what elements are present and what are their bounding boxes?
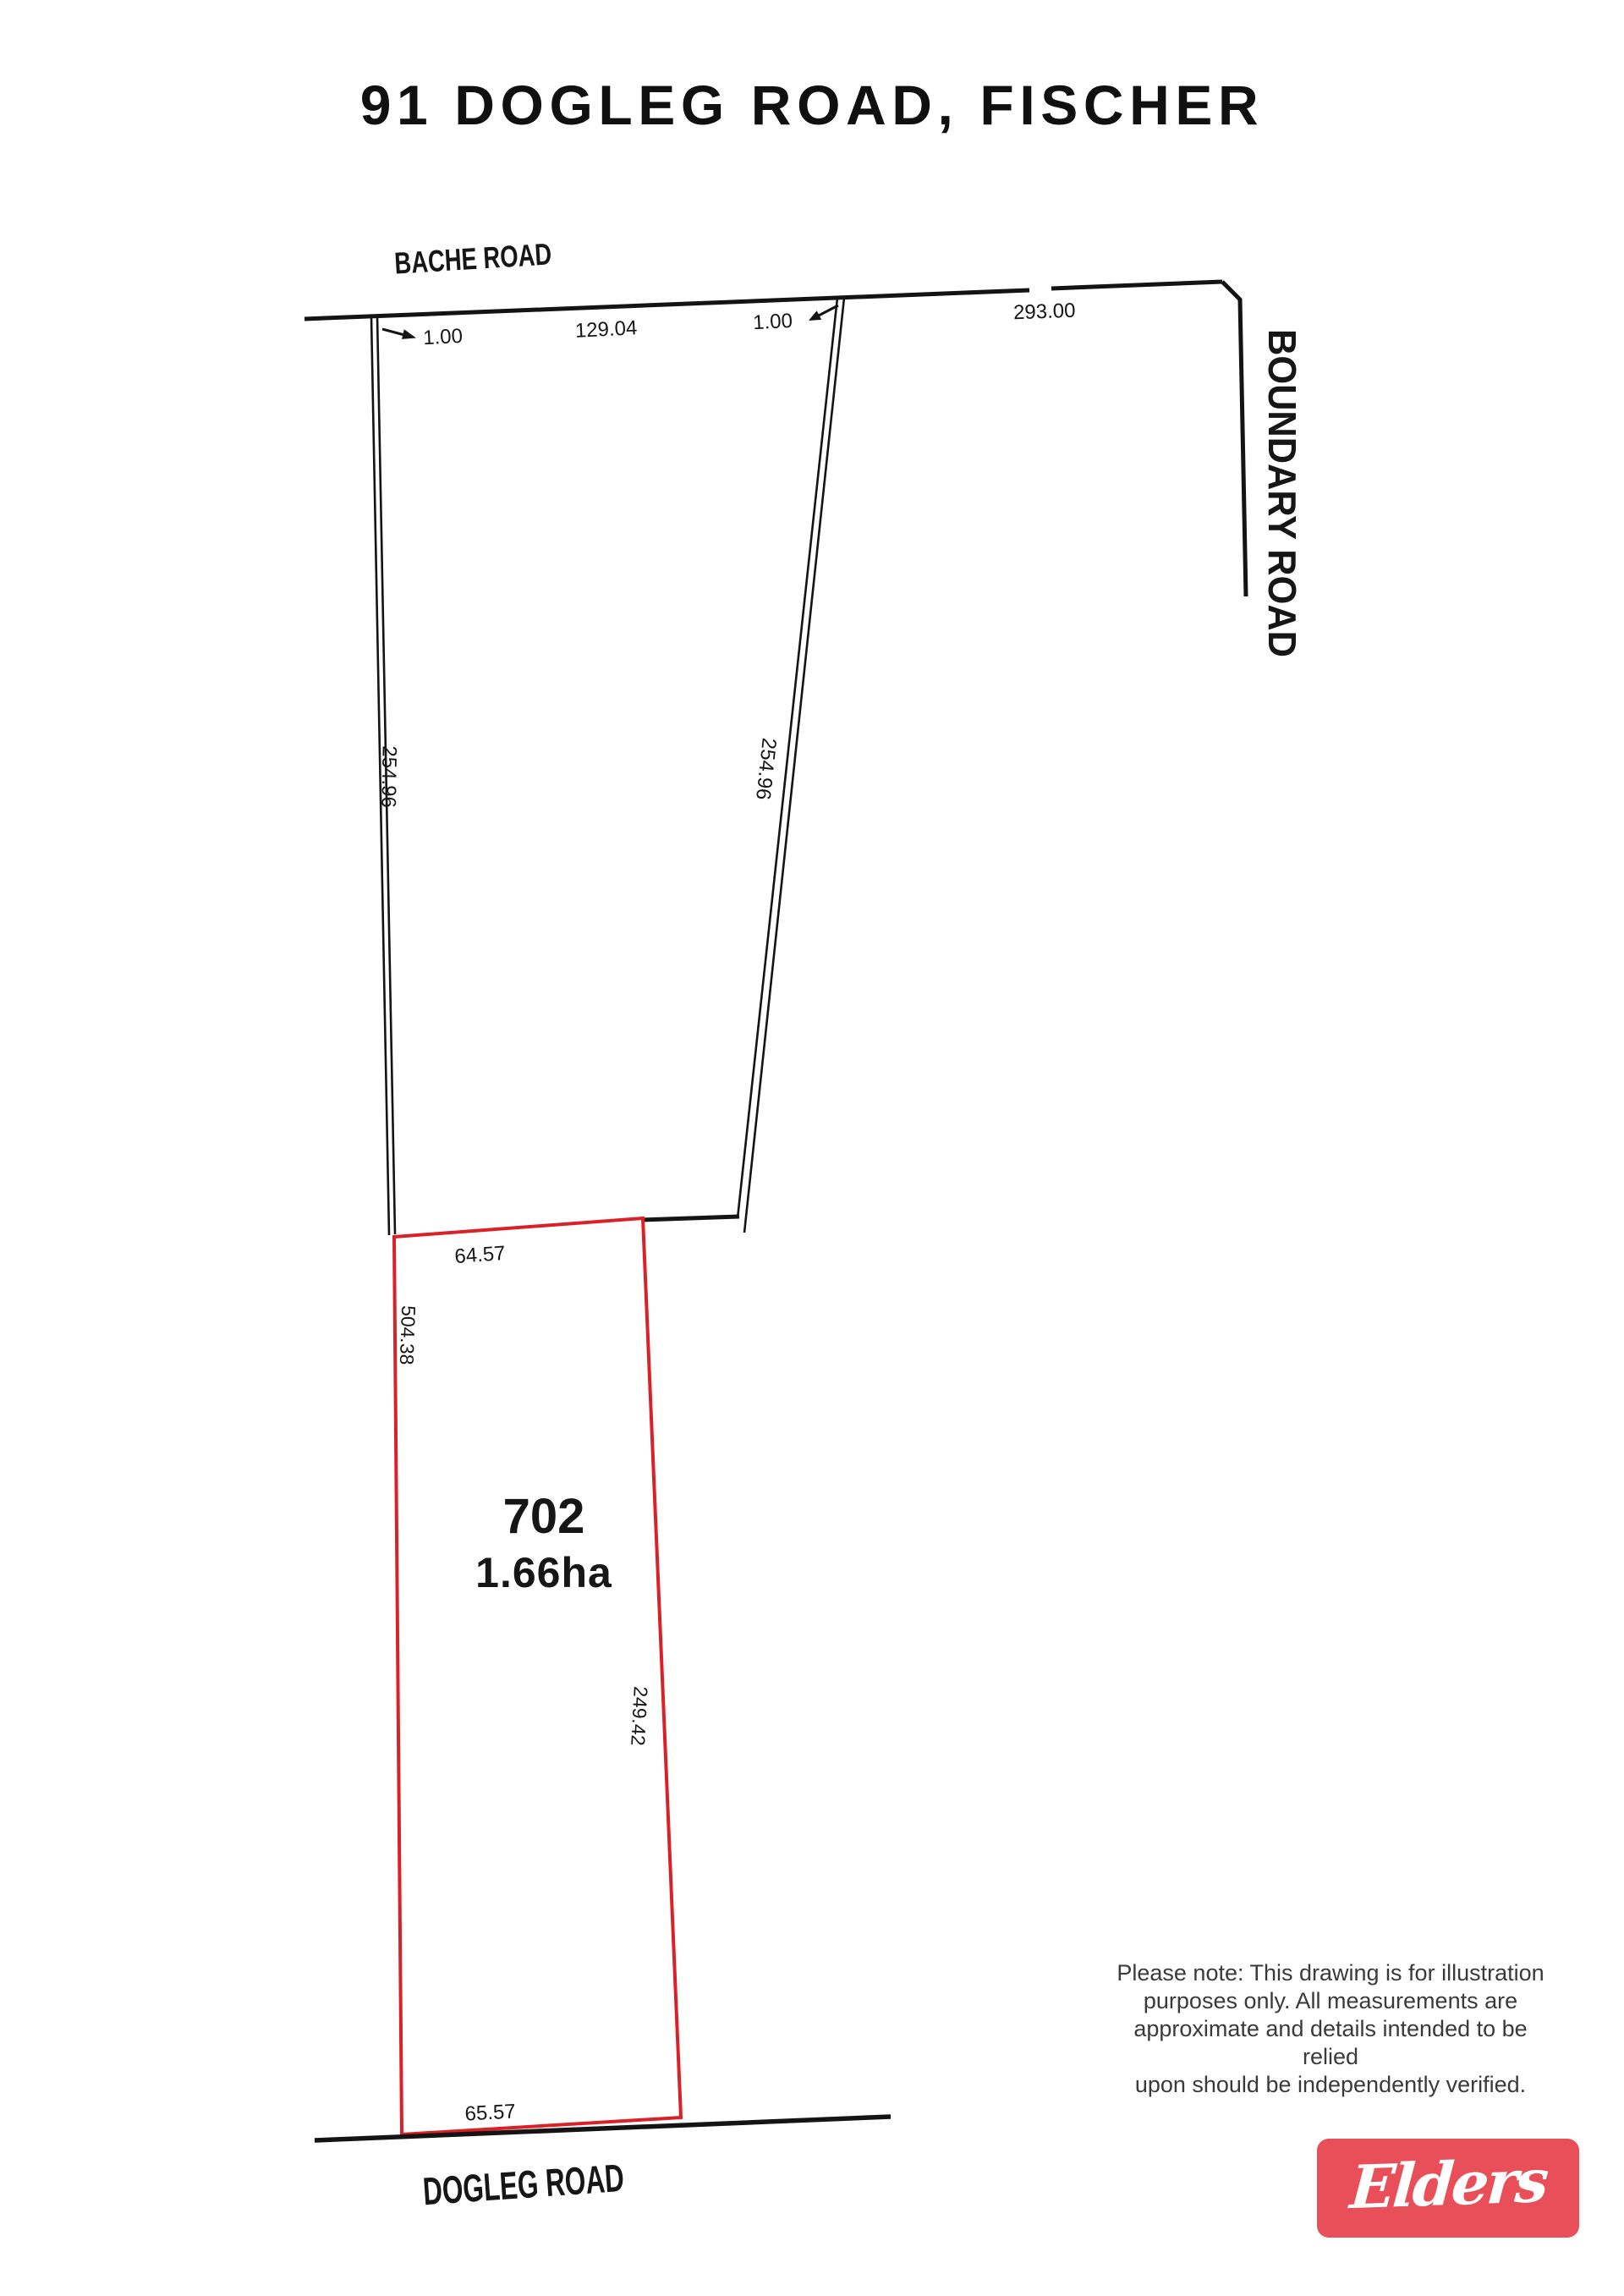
bache-road-line-east xyxy=(1051,282,1222,288)
dim-lot-right: 249.42 xyxy=(627,1686,652,1747)
dogleg-road-label: DOGLEG ROAD xyxy=(421,2156,625,2213)
bache-road-label: BACHE ROAD xyxy=(393,236,552,280)
right-strip-line-inner xyxy=(738,298,837,1218)
dim-right-side: 254.96 xyxy=(751,737,781,801)
elders-logo: Elders xyxy=(1317,2139,1579,2238)
left-offset-arrowhead xyxy=(402,329,416,339)
dim-top-left-offset: 1.00 xyxy=(423,325,464,349)
disclaimer-note: Please note: This drawing is for illustr… xyxy=(1108,1959,1553,2099)
elders-logo-wordmark: Elders xyxy=(1347,2150,1548,2225)
dim-lot-top: 64.57 xyxy=(454,1242,507,1268)
dim-left-side: 254.96 xyxy=(376,745,400,808)
disclaimer-line: Please note: This drawing is for illustr… xyxy=(1108,1959,1553,1987)
upper-parcel-bottom-line xyxy=(643,1217,739,1220)
lot-area: 1.66ha xyxy=(475,1549,612,1596)
dim-top-total: 293.00 xyxy=(1013,299,1076,325)
lot-number: 702 xyxy=(503,1489,585,1544)
dim-lot-bottom: 65.57 xyxy=(464,2100,516,2125)
boundary-road-label: BOUNDARY ROAD xyxy=(1260,329,1304,657)
disclaimer-line: upon should be independently verified. xyxy=(1108,2071,1553,2099)
bache-road-line-west xyxy=(304,290,1029,319)
boundary-road-line xyxy=(1222,282,1246,596)
disclaimer-line: purposes only. All measurements are xyxy=(1108,1987,1553,2015)
lot-702-outline xyxy=(394,1218,681,2134)
plan-drawing: BACHE ROAD BOUNDARY ROAD DOGLEG ROAD 1.0… xyxy=(0,0,1624,2296)
dim-top-right-offset: 1.00 xyxy=(753,310,793,334)
dim-top-frontage: 129.04 xyxy=(574,316,638,343)
dim-lot-left: 504.38 xyxy=(396,1305,420,1365)
disclaimer-line: approximate and details intended to be r… xyxy=(1108,2015,1553,2071)
